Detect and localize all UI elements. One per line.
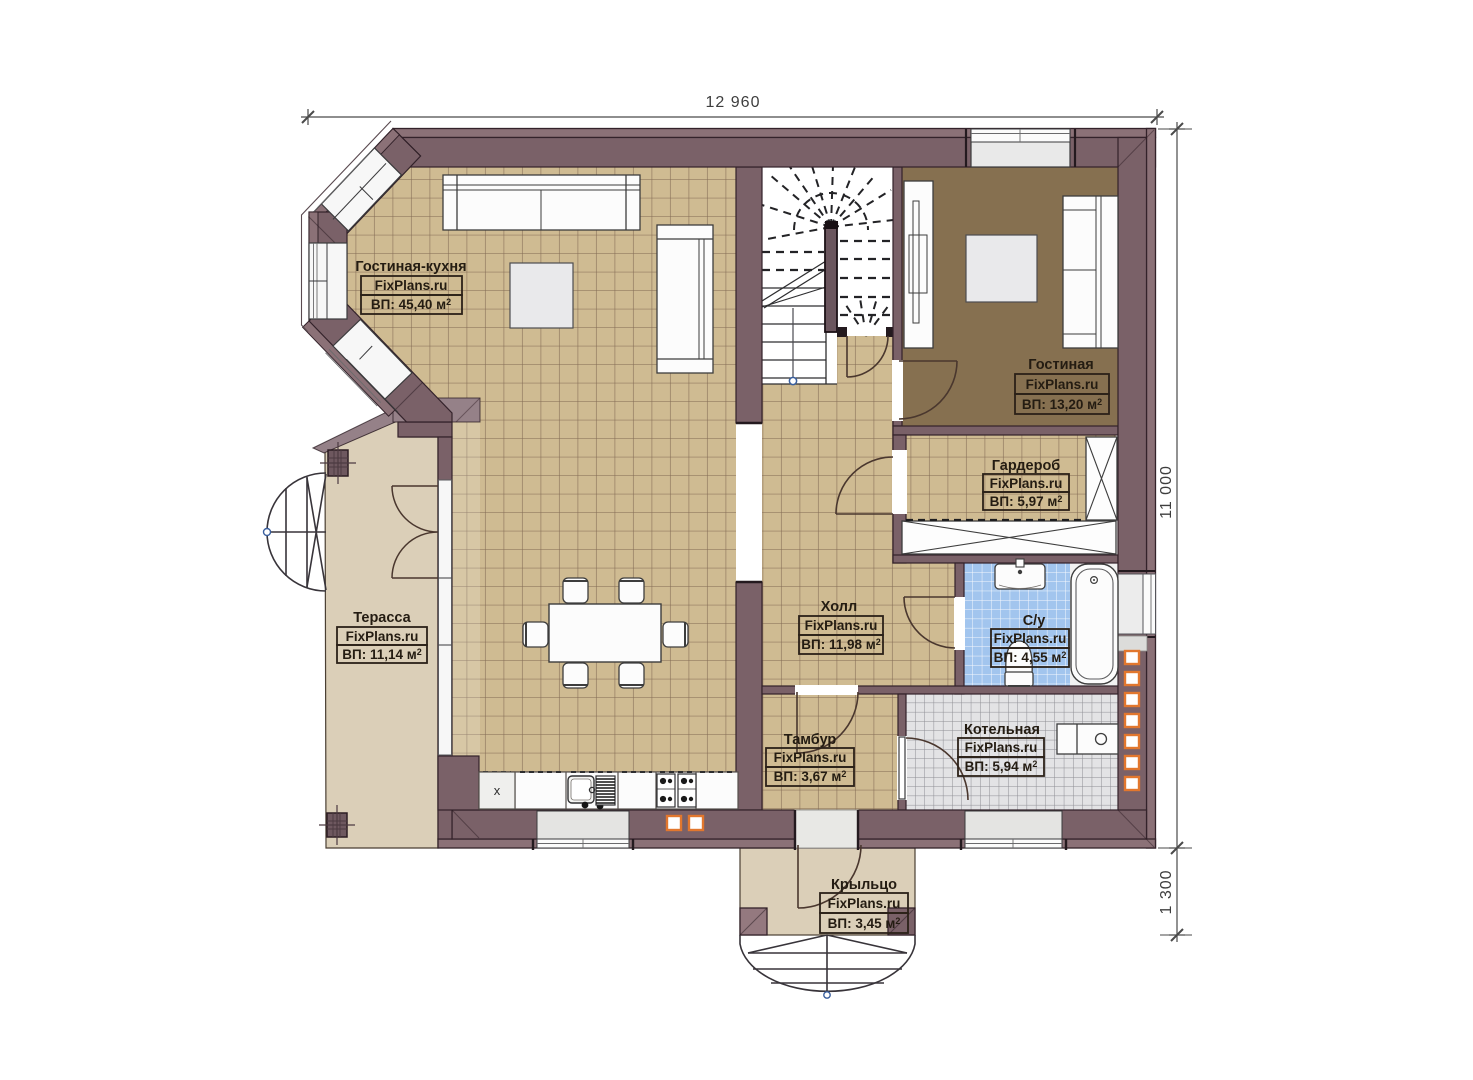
svg-text:1 300: 1 300 [1158,869,1175,914]
svg-text:x: x [494,783,501,798]
svg-text:ВП: 13,20 м2: ВП: 13,20 м2 [1022,397,1102,412]
svg-text:ВП: 5,97 м2: ВП: 5,97 м2 [990,494,1063,509]
svg-text:С/у: С/у [1023,613,1046,629]
svg-text:ВП: 3,67 м2: ВП: 3,67 м2 [774,769,847,784]
svg-text:Холл: Холл [821,599,857,615]
svg-text:12 960: 12 960 [706,94,761,111]
svg-text:FixPlans.ru: FixPlans.ru [805,618,878,633]
svg-text:Тамбур: Тамбур [784,732,837,748]
svg-text:ВП: 3,45 м2: ВП: 3,45 м2 [828,916,901,931]
svg-text:Гостиная-кухня: Гостиная-кухня [355,259,466,275]
svg-text:FixPlans.ru: FixPlans.ru [994,631,1067,646]
svg-text:FixPlans.ru: FixPlans.ru [1026,377,1099,392]
svg-text:FixPlans.ru: FixPlans.ru [346,629,419,644]
svg-text:FixPlans.ru: FixPlans.ru [990,476,1063,491]
svg-text:FixPlans.ru: FixPlans.ru [774,750,847,765]
svg-text:FixPlans.ru: FixPlans.ru [828,896,901,911]
svg-text:ВП: 5,94 м2: ВП: 5,94 м2 [965,759,1038,774]
svg-text:ВП: 45,40 м2: ВП: 45,40 м2 [371,297,451,312]
svg-text:FixPlans.ru: FixPlans.ru [375,278,448,293]
svg-text:ВП: 11,14 м2: ВП: 11,14 м2 [342,647,422,662]
svg-text:Терасса: Терасса [353,610,411,626]
svg-text:ВП: 11,98 м2: ВП: 11,98 м2 [801,637,881,652]
svg-text:Котельная: Котельная [964,722,1040,738]
svg-text:Гостиная: Гостиная [1028,357,1094,373]
svg-text:FixPlans.ru: FixPlans.ru [965,740,1038,755]
svg-text:Гардероб: Гардероб [992,458,1061,474]
svg-text:Крыльцо: Крыльцо [831,877,897,893]
svg-text:ВП: 4,55 м2: ВП: 4,55 м2 [994,650,1067,665]
svg-text:11 000: 11 000 [1158,465,1175,519]
